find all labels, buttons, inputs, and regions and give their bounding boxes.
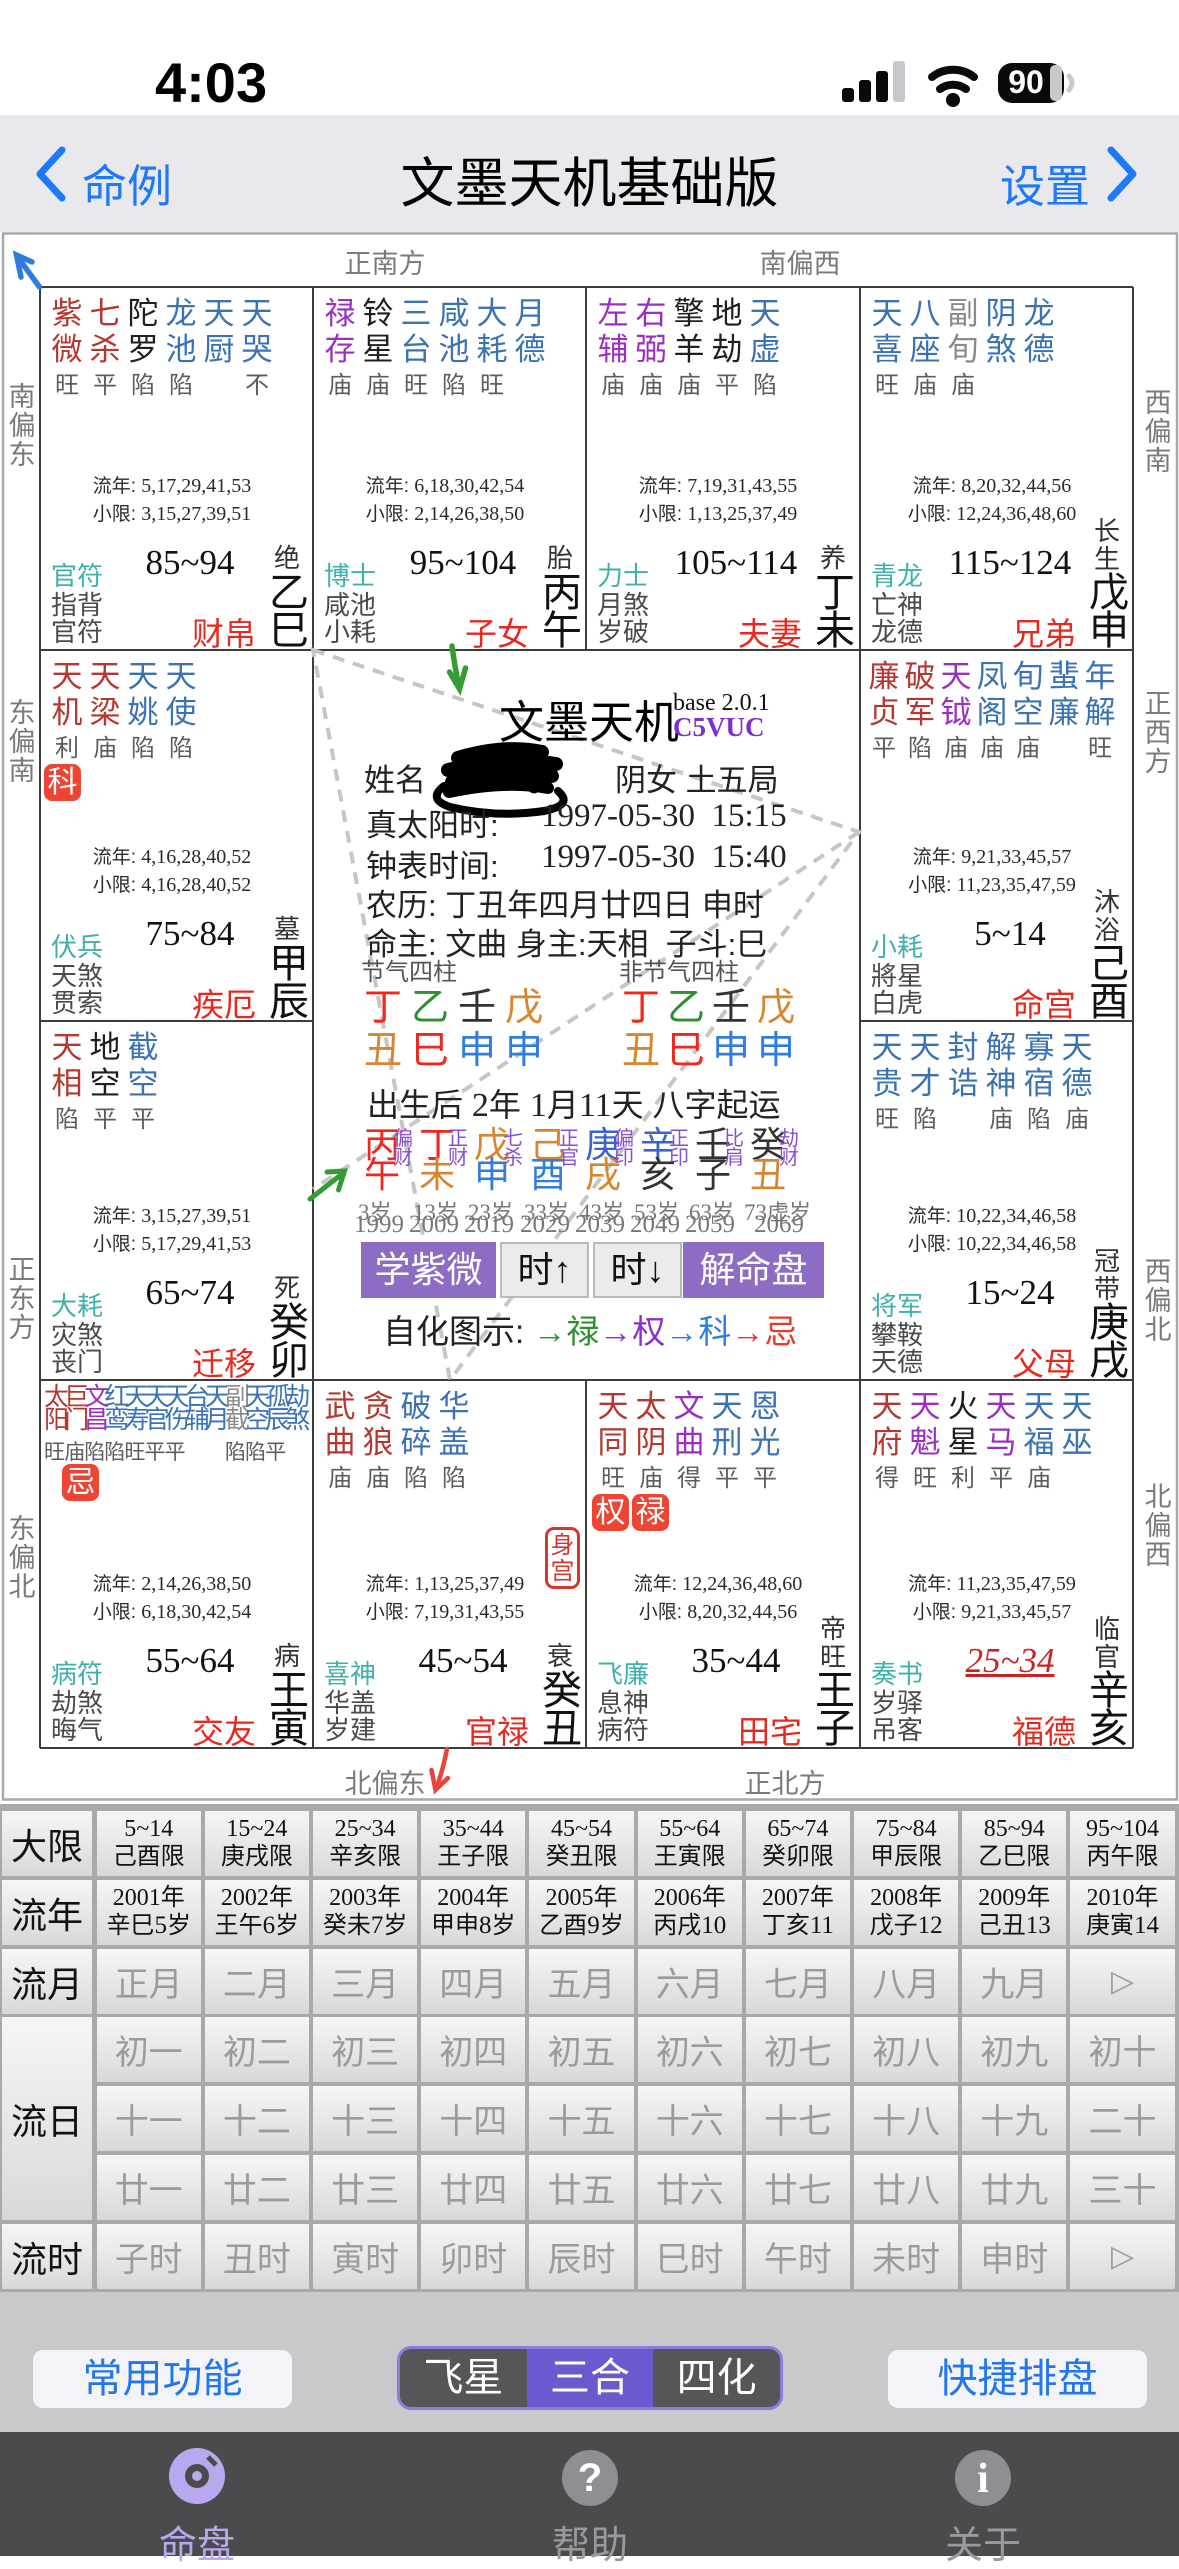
- svg-text:?: ?: [578, 2456, 602, 2500]
- svg-text:i: i: [977, 2456, 989, 2502]
- svg-text:90: 90: [1008, 64, 1044, 100]
